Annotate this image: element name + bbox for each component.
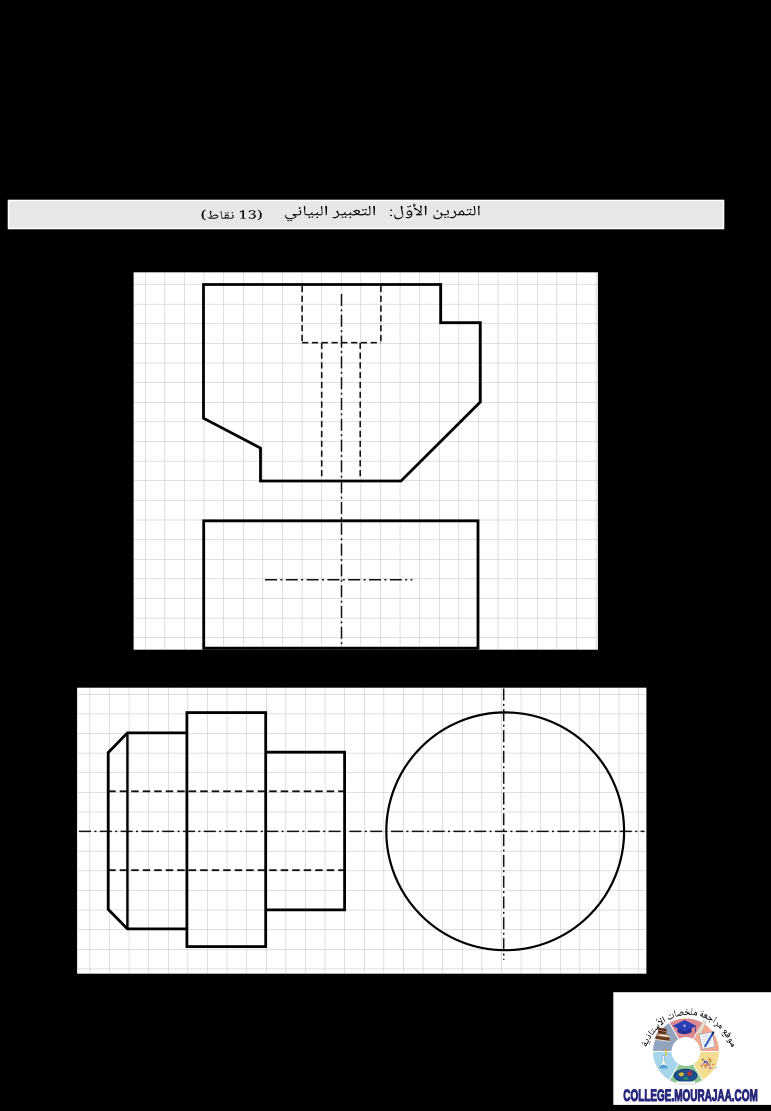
svg-text:COLLEGE.MOURAJAA.COM: COLLEGE.MOURAJAA.COM — [623, 1087, 758, 1105]
